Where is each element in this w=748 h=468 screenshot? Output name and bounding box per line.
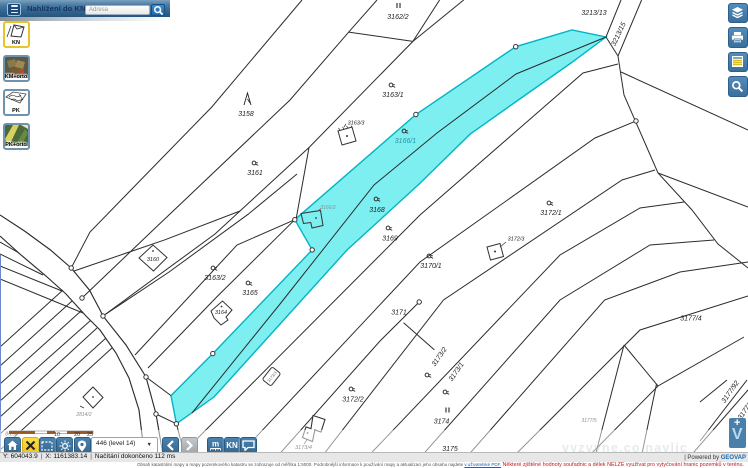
svg-text:3165: 3165	[242, 290, 258, 297]
svg-text:3213/13: 3213/13	[581, 10, 606, 17]
svg-text:3168: 3168	[369, 207, 385, 214]
svg-text:3158: 3158	[238, 111, 254, 118]
svg-text:3161: 3161	[247, 170, 263, 177]
svg-text:3166/2: 3166/2	[320, 205, 336, 211]
svg-text:3172/2: 3172/2	[342, 397, 364, 404]
svg-text:3164: 3164	[215, 310, 227, 316]
svg-text:3160: 3160	[147, 257, 160, 263]
svg-text:3177/4: 3177/4	[680, 316, 702, 323]
svg-text:3170/1: 3170/1	[420, 263, 442, 270]
svg-text:2814/2: 2814/2	[75, 412, 92, 418]
svg-text:3163/1: 3163/1	[382, 92, 404, 99]
svg-text:3163/3: 3163/3	[348, 121, 366, 127]
svg-text:3177/5: 3177/5	[581, 418, 597, 424]
svg-text:m: m	[211, 440, 218, 449]
svg-text:3163/2: 3163/2	[204, 275, 226, 282]
svg-text:3172/1: 3172/1	[540, 210, 562, 217]
svg-text:3169: 3169	[382, 236, 398, 243]
svg-text:3171: 3171	[391, 310, 407, 317]
svg-text:3162/2: 3162/2	[387, 14, 409, 21]
svg-text:3172/3: 3172/3	[508, 237, 526, 243]
svg-text:3174: 3174	[434, 419, 450, 426]
svg-text:3166/1: 3166/1	[395, 138, 417, 145]
